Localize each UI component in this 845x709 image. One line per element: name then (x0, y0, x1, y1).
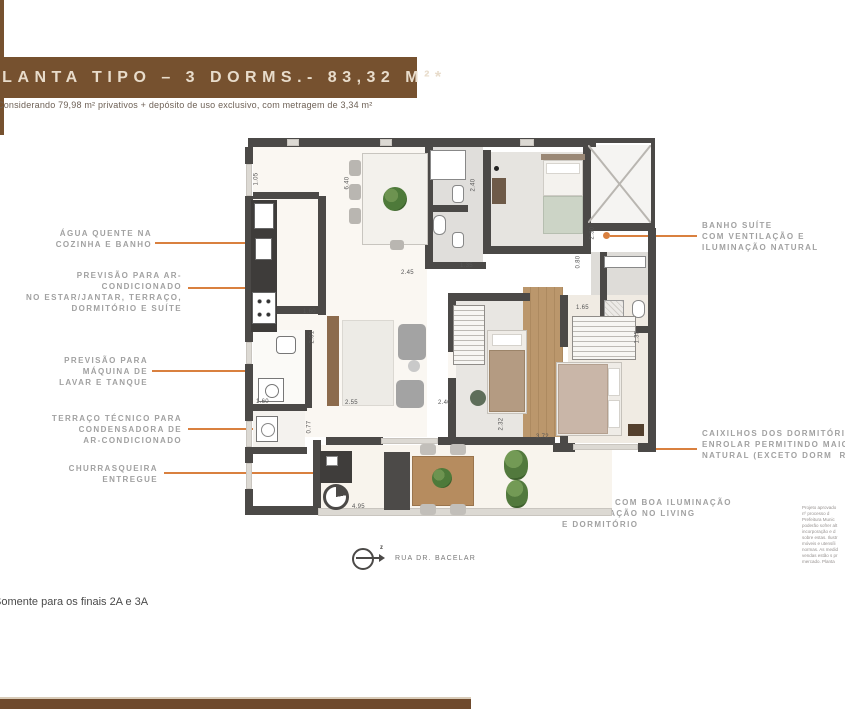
wall (588, 223, 655, 231)
bed3-blanket (489, 350, 525, 412)
bath-sink-icon (452, 185, 464, 203)
wall (553, 443, 575, 452)
wall (245, 147, 253, 164)
terrace-bush-icon (504, 450, 528, 480)
sofa-armchair (398, 324, 426, 360)
window-glass (246, 164, 252, 196)
table-plant-icon (383, 187, 407, 211)
terrace-chair (450, 504, 466, 515)
dimension-label: 2.32 (498, 418, 504, 431)
terrace-chair (420, 444, 436, 455)
dimension-label: 1.60 (303, 309, 316, 315)
wall (326, 437, 383, 445)
wardrobe-bedroom3 (453, 305, 485, 365)
kitchen-sink-icon (255, 238, 272, 260)
wall (428, 262, 486, 269)
wardrobe-suite (572, 316, 636, 360)
shower-tray (430, 150, 466, 180)
nightstand (628, 424, 644, 436)
barbecue-sink (326, 456, 338, 466)
dimension-label: 1.35 (460, 263, 473, 269)
bed2-pillow (546, 163, 580, 174)
compass-bar (356, 557, 380, 559)
toilet-icon (433, 215, 446, 235)
window-glass (287, 139, 299, 146)
bath-sink-icon (452, 232, 464, 248)
master-pillow (608, 400, 620, 428)
terrace-bush-icon (506, 480, 528, 508)
wall (651, 140, 655, 228)
dimension-label: 2.30 (589, 227, 595, 240)
dimension-label: 2.01 (309, 331, 315, 344)
wall (253, 192, 319, 199)
window-glass (246, 342, 252, 364)
bed3-pillow (492, 334, 522, 346)
wall (250, 404, 307, 411)
wall (588, 138, 655, 143)
wall (245, 364, 253, 421)
north-arrow-icon: z (352, 546, 386, 570)
suite-bath-counter (604, 256, 646, 268)
dining-chair (349, 160, 361, 176)
dimension-label: 6.40 (344, 177, 350, 190)
wall (250, 447, 307, 454)
sofa-armchair (396, 380, 424, 408)
wall (245, 506, 318, 515)
legal-fine-print: Projeto aprovado nº processo d Prefeitur… (802, 505, 845, 565)
wall (483, 150, 491, 253)
window-glass (380, 139, 392, 146)
wall (428, 205, 468, 212)
window-glass (573, 444, 638, 450)
dining-chair (390, 240, 404, 250)
dimension-label: 2.40 (470, 179, 476, 192)
dining-chair (349, 184, 361, 200)
window-glass (246, 463, 252, 489)
dimension-label: 2.45 (401, 270, 414, 276)
dimension-label: 2.55 (345, 400, 358, 406)
dimension-label: 2.40 (438, 400, 451, 406)
compass-circle (352, 548, 374, 570)
living-rug (342, 320, 394, 406)
pouf-icon (470, 390, 486, 406)
compass-arrowhead (379, 554, 385, 562)
wall (318, 196, 326, 315)
wall (648, 228, 656, 450)
compass-mark: z (380, 545, 383, 551)
wall (448, 293, 530, 301)
bottom-bar (0, 697, 471, 709)
window-glass (246, 421, 252, 447)
bed2-blanket (543, 196, 583, 234)
shaft-x-icon (588, 145, 651, 223)
terrace-plant-icon (432, 468, 452, 488)
terrace-chair (420, 504, 436, 515)
dimension-label: 1.60 (256, 399, 269, 405)
dimension-label: 4.95 (352, 504, 365, 510)
terrace-chair (450, 444, 466, 455)
wall (248, 138, 596, 147)
footnote: Somente para os finais 2A e 3A (0, 596, 148, 608)
wall (483, 246, 583, 254)
barbecue-grill-icon (323, 484, 349, 510)
dimension-label: 0.77 (306, 421, 312, 434)
dimension-label: 1.65 (576, 305, 589, 311)
terrace-planter (384, 452, 410, 510)
ceiling-point-icon (494, 166, 499, 171)
window-glass (520, 139, 534, 146)
ac-condenser-icon (256, 416, 278, 442)
laundry-tank-icon (276, 336, 296, 354)
dimension-label: 0.80 (575, 256, 581, 269)
stove-icon (252, 292, 276, 324)
wall (438, 437, 450, 445)
tv-panel (327, 316, 339, 406)
dimension-label: 3.72 (536, 434, 549, 440)
fridge-icon (254, 203, 274, 229)
dining-chair (349, 208, 361, 224)
side-table (408, 360, 420, 372)
bedroom2-dresser (492, 178, 506, 204)
master-bed-cover (558, 364, 608, 434)
dimension-label: 1.05 (253, 173, 259, 186)
wall (638, 443, 656, 452)
dimension-label: 1.35 (634, 331, 640, 344)
wall (560, 295, 568, 347)
street-label: RUA DR. BACELAR (395, 555, 476, 562)
master-pillow (608, 368, 620, 396)
